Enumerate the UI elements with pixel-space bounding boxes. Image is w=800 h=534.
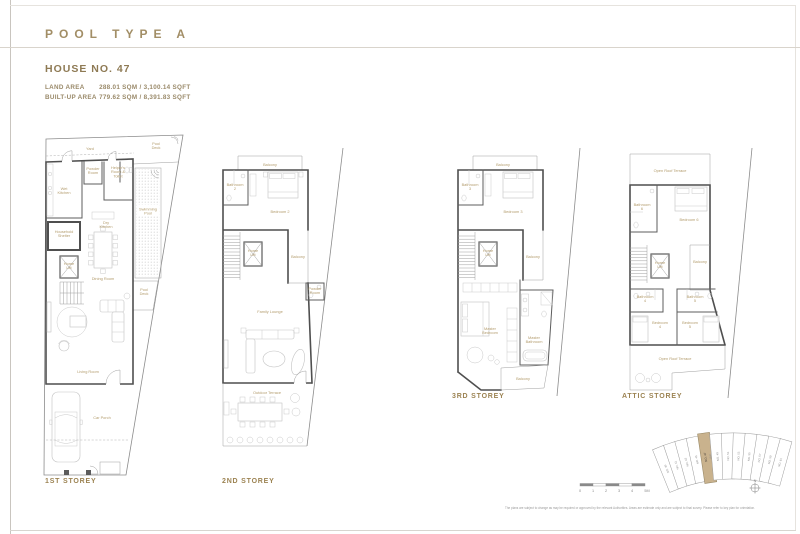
kitchen-counter-icon — [47, 164, 53, 216]
room-label-roof-terrace-bottom: Open Roof Terrace — [659, 356, 692, 361]
land-area-label: LAND AREA — [45, 84, 97, 91]
scale-tick: 2 — [605, 489, 607, 493]
room-label-dry-kitchen: DryKitchen — [100, 220, 113, 229]
outdoor-chair-icon — [652, 374, 661, 383]
coffee-table-icon — [70, 316, 86, 327]
room-label-bathroom6: Bathroom6 — [634, 202, 651, 211]
room-label-balcony-bottom: Balcony — [516, 376, 530, 381]
page-border-right — [795, 5, 796, 531]
store-room — [100, 462, 120, 474]
room-label-bathroom3: Bathroom3 — [462, 182, 479, 191]
room-label-balcony: Balcony — [496, 162, 510, 167]
keyplan-lot-label: NO. 53 — [736, 451, 740, 460]
room-label-bathroom5: Bathroom5 — [687, 294, 704, 303]
room-label-bedroom5: Bedroom5 — [682, 320, 698, 329]
storey-label-3rd: 3RD STOREY — [452, 393, 505, 400]
balcony-right — [690, 245, 710, 290]
dining-table-icon — [89, 227, 118, 274]
bed-icon — [703, 316, 719, 342]
wardrobe-icon — [250, 174, 256, 196]
built-up-area-value: 779.62 SQM / 8,391.83 SQFT — [99, 94, 190, 101]
plant-icon — [291, 394, 300, 403]
scale-tick: 3 — [618, 489, 620, 493]
room-label-pool-deck-bottom: PoolDeck — [140, 287, 149, 296]
land-area-row: LAND AREA 288.01 SQM / 3,100.14 SQFT — [45, 84, 191, 91]
bed-icon — [264, 172, 304, 198]
room-label-outdoor-terrace: Outdoor Terrace — [253, 390, 281, 395]
room-label-bedroom3: Bedroom 3 — [503, 209, 522, 214]
scale-tick: 4 — [631, 489, 633, 493]
outdoor-chair-icon — [636, 374, 645, 383]
gate-post — [64, 470, 69, 475]
car-icon — [50, 392, 82, 462]
room-label-bedroom2: Bedroom 2 — [270, 209, 289, 214]
room-label-family-lounge: Family Lounge — [257, 309, 283, 314]
room-label-roof-terrace-top: Open Roof Terrace — [654, 168, 687, 173]
room-label-wet-kitchen: WetKitchen — [58, 186, 71, 195]
header-rule — [0, 47, 800, 48]
room-label-balcony-right: Balcony — [526, 254, 540, 259]
stairs-icon — [630, 245, 647, 283]
tv-console-icon — [224, 340, 228, 368]
room-label-powder-room: PowderRoom — [86, 166, 100, 175]
scale-tick: 1 — [592, 489, 594, 493]
room-label-bathroom4: Bathroom4 — [637, 294, 654, 303]
room-label-master-bathroom: MasterBathroom — [526, 335, 543, 344]
built-up-area-row: BUILT-UP AREA 779.62 SQM / 8,391.83 SQFT — [45, 94, 191, 101]
floor-plan-3rd-storey: Balcony Bathroom3 Bedroom 3 HomeLift Bal… — [445, 140, 590, 408]
coffee-table-icon — [263, 351, 285, 367]
room-label-car-porch: Car Porch — [93, 415, 111, 420]
chaise-icon — [289, 348, 307, 376]
bathtub-icon — [523, 350, 547, 361]
storey-label-1st: 1ST STOREY — [45, 478, 96, 485]
keyplan-lot-label: NO. 51 — [726, 451, 730, 460]
room-label-balcony: Balcony — [263, 162, 277, 167]
rug-icon — [467, 347, 483, 363]
scale-tick: 0 — [579, 489, 581, 493]
disclaimer-text: The plans are subject to change as may b… — [505, 506, 755, 510]
wardrobe-icon — [485, 174, 491, 196]
floor-plan-1st-storey: Yard PoolDeck PowderRoom Helper'sRoom &T… — [36, 126, 188, 482]
plant-icon — [124, 293, 130, 299]
page-border-left — [10, 0, 11, 534]
storey-label-attic: ATTIC STOREY — [622, 393, 682, 400]
room-label-living-room: Living Room — [77, 369, 99, 374]
bathroom4 — [630, 289, 663, 312]
gate-post — [86, 470, 91, 475]
room-label-powder-room: PowderRoom — [308, 286, 322, 295]
keyplan-lot-label: NO. 55 — [747, 452, 752, 462]
sofa-icon — [100, 300, 124, 342]
room-label-balcony-right: Balcony — [693, 259, 707, 264]
scale-bar-icon: 0 1 2 3 4 5M — [579, 484, 650, 494]
page-title: POOL TYPE A — [45, 27, 191, 41]
scale-tick: 5M — [644, 489, 649, 493]
armchair-icon — [488, 355, 494, 361]
kitchen-island-icon — [92, 212, 114, 219]
room-label-helpers-room: Helper'sRoom &Toilet — [111, 165, 126, 178]
room-label-bathroom2: Bathroom2 — [227, 182, 244, 191]
room-label-yard: Yard — [86, 146, 94, 151]
built-up-area-label: BUILT-UP AREA — [45, 94, 97, 101]
plant-icon — [292, 408, 300, 416]
room-label-bedroom4: Bedroom4 — [652, 320, 668, 329]
lot-boundary — [728, 148, 752, 398]
page-border-top — [10, 5, 796, 6]
room-label-pool-deck-top: PoolDeck — [152, 141, 161, 150]
room-label-bedroom6: Bedroom 6 — [679, 217, 698, 222]
room-label-master-bedroom: MasterBedroom — [482, 326, 498, 335]
floor-plan-2nd-storey: Balcony Bathroom2 Bedroom 2 HomeLift Bal… — [210, 140, 358, 462]
lot-boundary — [557, 148, 580, 396]
house-number-title: HOUSE NO. 47 — [45, 63, 131, 75]
bed-icon — [503, 172, 533, 198]
floor-plan-attic-storey: Open Roof Terrace Bathroom6 Bedroom 6 Ho… — [615, 140, 760, 408]
land-area-value: 288.01 SQM / 3,100.14 SQFT — [99, 84, 190, 91]
footer: 0 1 2 3 4 5M The plans are subject to ch… — [380, 470, 800, 530]
pouf-icon — [495, 360, 500, 365]
page-border-bottom — [10, 530, 796, 531]
tv-console-icon — [47, 302, 51, 332]
stairs-icon — [223, 232, 240, 280]
roof-terrace-bottom — [630, 345, 725, 390]
master-bathroom — [520, 280, 553, 365]
bathroom6 — [630, 185, 657, 232]
side-table-icon — [646, 378, 650, 382]
room-label-dining-room: Dining Room — [92, 276, 115, 281]
toilet-icon — [125, 167, 132, 173]
storey-label-2nd: 2ND STOREY — [222, 478, 275, 485]
keyplan-lot-label: NO. 49 — [715, 452, 720, 462]
bed-icon — [632, 316, 648, 342]
stairs-icon — [60, 282, 84, 304]
room-label-balcony-right: Balcony — [291, 254, 305, 259]
closet-column-icon — [507, 308, 517, 362]
stairs-icon — [458, 232, 475, 280]
armchair-icon — [59, 340, 70, 351]
bed-icon — [675, 187, 707, 211]
planter-row-icon — [227, 437, 303, 443]
swimming-pool — [135, 168, 161, 278]
